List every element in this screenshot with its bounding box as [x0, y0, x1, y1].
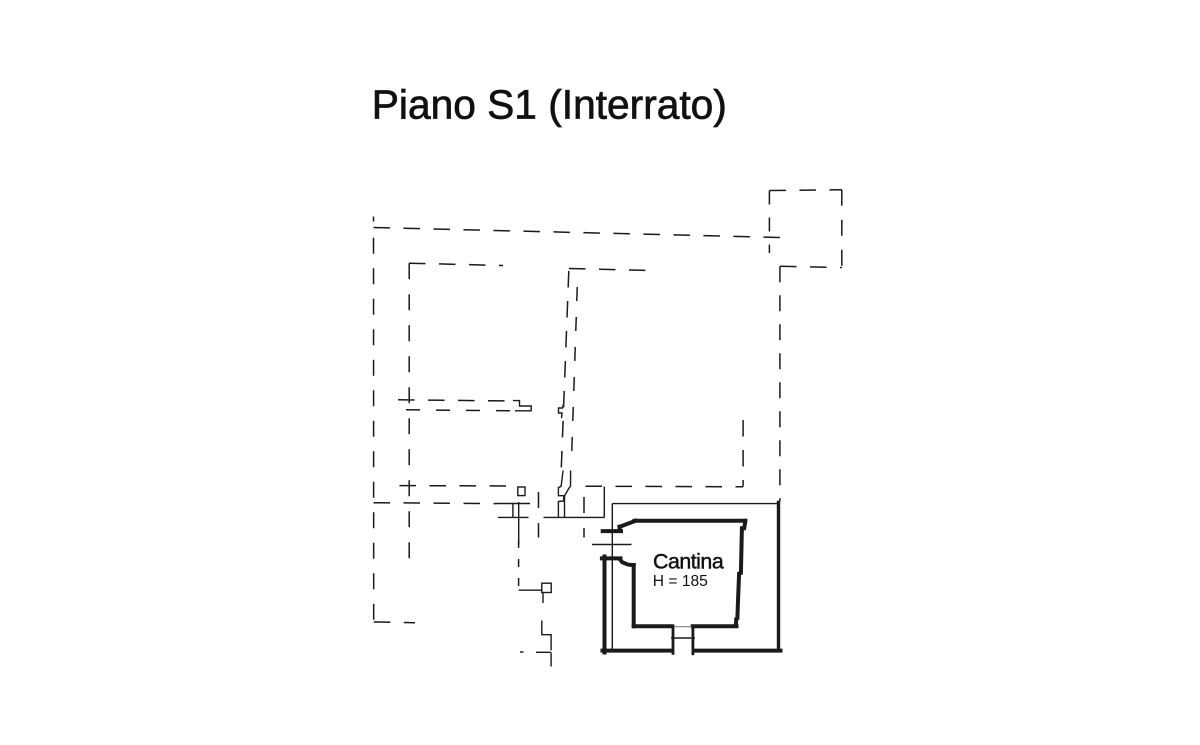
svg-text:Piano S1 (Interrato): Piano S1 (Interrato)	[372, 82, 727, 128]
svg-text:Cantina: Cantina	[653, 550, 724, 574]
svg-text:H = 185: H = 185	[653, 573, 708, 590]
